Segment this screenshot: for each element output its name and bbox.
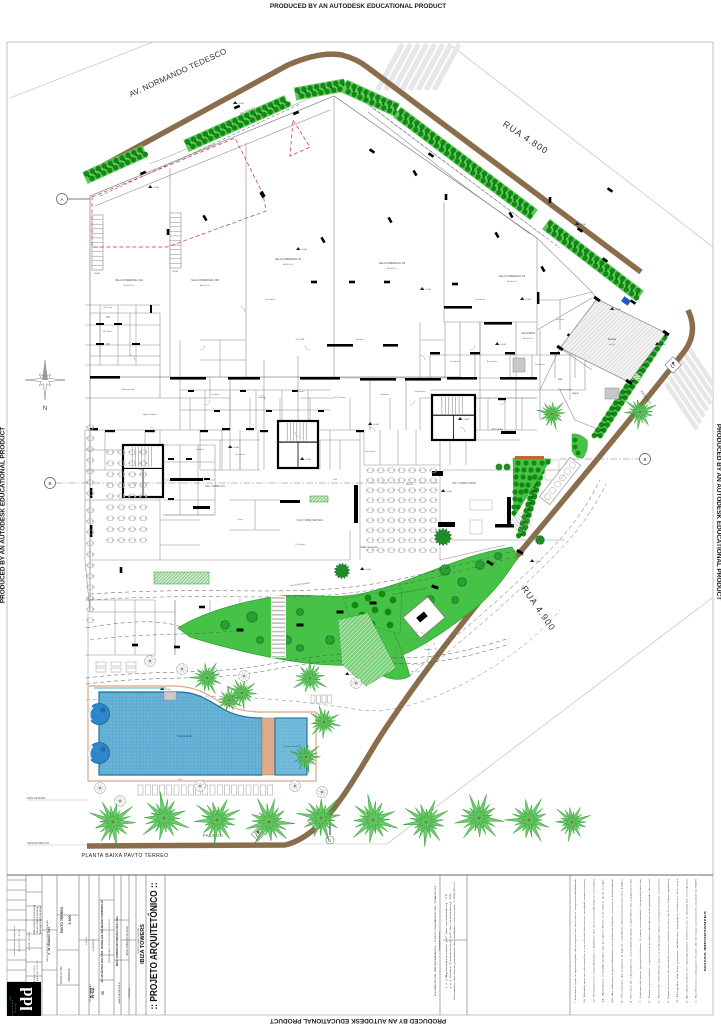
svg-text:PRODUCED BY AN AUTODESK EDUCAT: PRODUCED BY AN AUTODESK EDUCATIONAL PROD… [270,1017,446,1024]
svg-text:+0,00: +0,00 [301,249,307,251]
svg-text:( x ) Salas Comerciais (nº de: ( x ) Salas Comerciais (nº de unidades):… [449,891,452,988]
svg-text:Hall: Hall [138,468,143,471]
svg-text:Equipamentos: Equipamentos [558,388,573,391]
svg-text:09: 09 [101,991,105,995]
svg-text:AV. ATLÂNTICA RUA 4.800 - BARR: AV. ATLÂNTICA RUA 4.800 - BARRA SUL BALN… [101,900,104,983]
svg-text:Rampa: Rampa [608,337,617,341]
svg-text:Bombas: Bombas [356,339,365,341]
svg-text:Circulação: Circulação [365,450,376,453]
svg-text:Depósito: Depósito [296,390,305,393]
svg-text:+0,00: +0,00 [233,447,239,449]
svg-text:SALA COMERCIAL 01A: SALA COMERCIAL 01A [115,278,143,282]
svg-text:HALL TORRE SUL: HALL TORRE SUL [205,485,226,488]
svg-text:WC PNE: WC PNE [296,339,305,341]
svg-text:Sl. Festas: Sl. Festas [295,543,306,546]
svg-text:Piscina Infantil: Piscina Infantil [284,745,299,748]
svg-text:WC Serviço: WC Serviço [334,396,346,399]
svg-text:Acesso: Acesso [406,483,414,486]
svg-text:B: B [643,457,646,462]
svg-text:Depósito: Depósito [556,318,565,321]
svg-text:A: A [60,197,63,202]
svg-text:A_06 TÉRREO_R04: A_06 TÉRREO_R04 [46,927,51,955]
svg-text:+0,00: +0,00 [365,569,371,571]
svg-text:Característica da obra:: Característica da obra: [438,930,441,951]
svg-text:B: B [48,481,51,486]
svg-text:1. Banheiros contíguos: locais: 1. Banheiros contíguos: locais de serviç… [695,878,698,1003]
svg-text:+0,00: +0,00 [500,344,506,346]
svg-text:Borda: Borda [178,779,183,781]
svg-text:NOTAS IMPORTANTES: NOTAS IMPORTANTES [704,910,707,971]
svg-text:Circulação: Circulação [491,428,503,431]
svg-text:7. Linhas de torre (projeto/ob: 7. Linhas de torre (projeto/obras: 1 par… [639,877,642,1003]
svg-text:WC Fem.: WC Fem. [103,307,113,309]
svg-text:+0,00: +0,00 [373,424,379,426]
svg-text:12. Respeitem as especificaçõe: 12. Respeitem as especificações e detalh… [592,878,595,1003]
svg-text:+0,00: +0,00 [463,419,469,421]
svg-text:Nº DE PRANCHAS: Nº DE PRANCHAS [89,984,92,1002]
svg-text:Água/Gorgem: Água/Gorgem [143,413,157,416]
svg-text:LINHA DE MURO: LINHA DE MURO [27,797,46,800]
svg-text:ldd: ldd [17,987,36,1011]
svg-text:A=000,00 m²: A=000,00 m² [124,284,135,287]
svg-text:Cozinha: Cozinha [211,394,220,396]
svg-text:ESCALA 1:300: ESCALA 1:300 [59,966,63,984]
svg-text:+55 (47) 3 3 6 7 - 0 0 0 0: +55 (47) 3 3 6 7 - 0 0 0 0 [19,929,21,952]
svg-text:02/04/2019: 02/04/2019 [129,987,131,999]
svg-text:VANESSA DALMOLIN: VANESSA DALMOLIN [118,982,121,1004]
svg-text:PLANTA BAIXA PAVTO TÉRREO: PLANTA BAIXA PAVTO TÉRREO [81,852,168,859]
svg-text:13. Mantido que as informações: 13. Mantido que as informações e ou refe… [583,878,586,1003]
svg-text:ESTÁGIO DE IMPERMEÁVEL - POLO: ESTÁGIO DE IMPERMEÁVEL - POLO GERADOR DE… [434,885,437,996]
svg-text:EQUIPE TÉCNICA: EQUIPE TÉCNICA [28,931,31,950]
svg-text:Fraldário: Fraldário [196,448,205,451]
svg-text:PRODUCED BY AN AUTODESK EDUCAT: PRODUCED BY AN AUTODESK EDUCATIONAL PROD… [270,3,446,10]
svg-text:WC: WC [106,316,110,319]
svg-text:+0,00: +0,00 [305,459,311,461]
svg-text:A=000,00 m²: A=000,00 m² [387,267,398,270]
svg-text:Salatas: Salatas [258,396,266,399]
svg-text:HALL TORRE CENTRAL: HALL TORRE CENTRAL [297,519,324,522]
svg-text:JOÃO RODRIGUES DA SILVA: JOÃO RODRIGUES DA SILVA [33,905,36,935]
svg-text:8. Recuos de elevadores: consu: 8. Recuos de elevadores: consultar proje… [630,877,633,1003]
svg-text:Salão de Festas: Salão de Festas [360,546,378,549]
svg-text:LINHA DE MEIO FIO: LINHA DE MEIO FIO [27,842,49,845]
svg-text:Vestiários: Vestiários [450,360,460,363]
svg-text:Circulação: Circulação [475,298,486,301]
svg-text:Equip.: Equip. [573,392,580,395]
svg-text:SALA COMERCIAL 04: SALA COMERCIAL 04 [499,274,526,278]
svg-text:SALA COMERCIAL 01B: SALA COMERCIAL 01B [191,278,219,282]
svg-text:+0,00: +0,00 [165,689,171,691]
svg-text:+0,00: +0,00 [615,309,621,311]
svg-text:A=000,00 m²: A=000,00 m² [283,263,294,266]
svg-text:( x ) Apartamentos (nº de unid: ( x ) Apartamentos (nº de unidades): 72 [445,891,448,988]
svg-text:9. Reservas de espera d água:: 9. Reservas de espera d água: verificar … [620,877,623,1003]
svg-text:A=000,00 m²: A=000,00 m² [523,337,534,340]
svg-text:FOLHA: FOLHA [85,937,88,945]
svg-text:Piscina Adulto: Piscina Adulto [177,735,193,738]
svg-text:Bicicletário: Bicicletário [487,360,498,363]
svg-text:SALA BOM: SALA BOM [521,331,534,335]
svg-text:SALA COMERCIAL 02: SALA COMERCIAL 02 [275,257,302,261]
svg-text:* Declaro que a aprovação do p: * Declaro que a aprovação do projeto de … [574,877,577,1003]
svg-text:PRODUCED BY AN AUTODESK EDUCAT: PRODUCED BY AN AUTODESK EDUCATIONAL PROD… [0,427,7,603]
svg-text:+0,00: +0,00 [580,224,586,226]
svg-text:3. Região da luz piscar aldeia: 3. Região da luz piscar aldeias: quadro … [676,878,679,1003]
svg-text:Higienização: Higienização [122,388,135,391]
svg-text:+0,00: +0,00 [535,561,541,563]
svg-text:FELIPE GOMES DA SILVA: FELIPE GOMES DA SILVA [36,906,39,933]
svg-text:HALL TORRE NORTE: HALL TORRE NORTE [452,482,476,485]
svg-text:C A U A 1 2 3 4 5 6: C A U A 1 2 3 4 5 6 [33,965,36,984]
svg-text:e-mail: ibizatowers.inc@gmail.: e-mail: ibizatowers.inc@gmail.com [13,925,16,956]
svg-text:Copa: Copa [237,519,243,521]
svg-text:+0,00: +0,00 [238,103,244,105]
svg-text:Ventilações: Ventilações [414,390,426,393]
svg-text:WC Masc.: WC Masc. [103,331,113,333]
svg-text:PAVTO TÉRREO: PAVTO TÉRREO [59,907,64,934]
svg-text:08/04/2019: 08/04/2019 [67,968,71,982]
svg-text:+0,00: +0,00 [525,299,531,301]
svg-text:Bombas: Bombas [381,394,390,396]
svg-text::: PROJETO ARQUITETÔNICO ::: :: PROJETO ARQUITETÔNICO :: [147,883,160,1010]
svg-text:2. As dimensões em planta baix: 2. As dimensões em planta baixa referem-… [685,879,688,1003]
svg-text:SOBE: SOBE [94,273,100,275]
svg-text:PRODUCED BY AN AUTODESK EDUCAT: PRODUCED BY AN AUTODESK EDUCATIONAL PROD… [715,424,721,600]
svg-text:Circulação: Circulação [265,298,276,301]
svg-text:PREFEITURA MUNICIPAL: PREFEITURA MUNICIPAL [137,927,140,954]
svg-text:6. Dentro possíveis: o present: 6. Dentro possíveis: o presente projeto … [648,877,651,1003]
svg-text:Geradores: Geradores [535,363,546,366]
svg-text:4. Vigas terminais de elevador: 4. Vigas terminais de elevador prever re… [667,878,670,1003]
svg-text:10. As alturas especificadas e: 10. As alturas especificadas em planta b… [611,879,614,1003]
svg-text:A=000,00 m²: A=000,00 m² [507,280,518,283]
svg-text:N: N [43,406,47,412]
svg-text:A=000,00 m²: A=000,00 m² [200,284,211,287]
svg-text:d e s i g n: d e s i g n [15,1002,17,1012]
svg-text:Hall: Hall [333,479,337,481]
svg-text:MARINA GOMES DA SILVA: MARINA GOMES DA SILVA [39,906,42,934]
svg-text:Somatório das áreas privativas: Somatório das áreas privativas das unida… [453,881,456,1000]
svg-text:JOSÉ ROBERTO DA SILVA: JOSÉ ROBERTO DA SILVA [126,926,129,956]
svg-text:a=00%: a=00% [609,344,616,346]
svg-text:WC: WC [106,343,110,346]
svg-text:RESPONSÁVEL TÉCNICO PELO PROJE: RESPONSÁVEL TÉCNICO PELO PROJETO [108,919,111,963]
svg-text:+0,00: +0,00 [153,187,159,189]
svg-text:SOBE: SOBE [172,271,178,273]
svg-text:11. Analisar modificação do pr: 11. Analisar modificação do projeto feit… [602,877,605,1003]
svg-text:+0,00: +0,00 [425,289,431,291]
svg-text:+0,00: +0,00 [446,491,452,493]
svg-text:5. Nível de referência para a: 5. Nível de referência para a indicação … [658,879,661,1003]
svg-text:SALA COMERCIAL 03: SALA COMERCIAL 03 [379,261,406,265]
svg-text:Circulação: Circulação [235,453,246,456]
svg-text:ENDEREÇO: ENDEREÇO [93,939,95,952]
svg-text:1:300: 1:300 [68,915,72,924]
svg-text:IBIZA TOWERS: IBIZA TOWERS [140,924,146,964]
svg-text:+0,00: +0,00 [660,344,666,346]
